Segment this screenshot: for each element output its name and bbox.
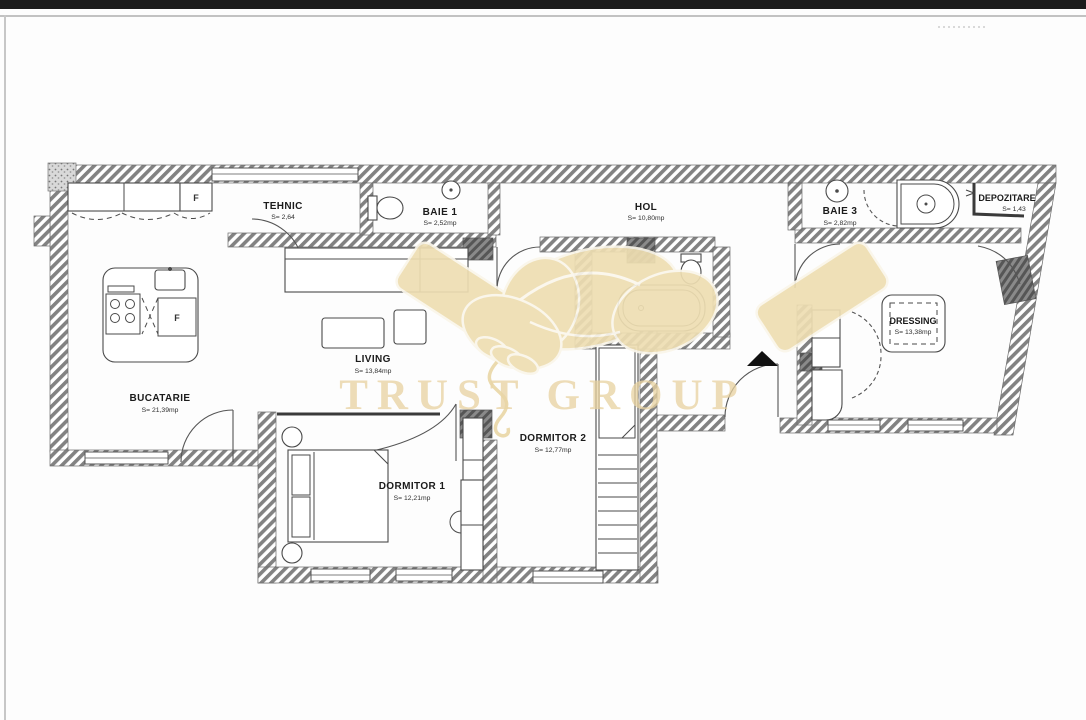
wall-right-slanted: [994, 183, 1056, 435]
room-area-baie3: S= 2,82mp: [823, 220, 856, 227]
kitchen-island: [103, 267, 198, 362]
wall-dormitor-divider: [483, 440, 497, 583]
kitchen-counter: [68, 183, 180, 211]
room-name-baie1: BAIE 1: [423, 207, 458, 218]
room-name-living: LIVING: [355, 354, 391, 365]
bed-dormitor1: [288, 450, 388, 542]
dormitor1-group: [282, 418, 483, 567]
room-area-living: S= 13,84mp: [355, 368, 392, 375]
shower: [897, 180, 959, 228]
window: [908, 420, 963, 431]
floor-plan-page: TRUST GROUP TEHNIC S= 2,64 BAIE 1 S= 2,5…: [0, 0, 1086, 720]
room-name-depozitare: DEPOZITARE: [978, 193, 1035, 203]
kitchen-group: [68, 183, 212, 362]
window: [533, 571, 603, 583]
shower-door-arc: [864, 190, 897, 226]
fridge-label: F: [193, 193, 199, 203]
armchair: [394, 310, 426, 344]
watermark-text: TRUST GROUP: [339, 372, 747, 419]
wall-stairwell-right: [640, 330, 657, 583]
window: [396, 569, 452, 581]
wall-baie3-bottom: [795, 228, 1021, 243]
dressing-folding-door-upper: [852, 312, 881, 355]
north-arrow-icon: [747, 351, 778, 366]
island-appliance-label: F: [174, 313, 180, 323]
island-sink: [155, 270, 185, 290]
wall-baie1-right: [488, 183, 500, 235]
room-name-dressing: DRESSING: [889, 316, 936, 326]
room-area-dormitor2: S= 12,77mp: [535, 447, 572, 454]
nightstand: [282, 427, 302, 447]
window: [212, 168, 358, 181]
toilet-baie1: [368, 196, 403, 220]
room-area-dressing: S= 13,38mp: [895, 329, 932, 336]
room-area-bucatarie: S= 21,39mp: [142, 407, 179, 414]
nightstand: [282, 543, 302, 563]
sink-baie3: [826, 180, 848, 202]
upper-cabinets-dashed: [72, 213, 210, 220]
coffee-table: [322, 318, 384, 348]
room-area-dormitor1: S= 12,21mp: [394, 495, 431, 502]
window: [311, 569, 370, 581]
window: [85, 452, 168, 464]
wall-dormitor1-left: [258, 412, 276, 583]
faucet-icon: [168, 267, 172, 271]
wall-baie3-left: [788, 183, 802, 230]
window: [828, 420, 880, 431]
room-name-dormitor2: DORMITOR 2: [520, 433, 587, 444]
wardrobe-dormitor2: [450, 480, 483, 570]
floor-plan-canvas: TRUST GROUP TEHNIC S= 2,64 BAIE 1 S= 2,5…: [0, 0, 1086, 720]
room-area-depozitare: S= 1,43: [1002, 206, 1026, 213]
wall-left: [50, 183, 68, 452]
room-name-tehnic: TEHNIC: [263, 201, 303, 212]
dressing-folding-door-lower: [852, 355, 881, 398]
room-area-tehnic: S= 2,64: [271, 214, 295, 221]
room-name-baie3: BAIE 3: [823, 206, 858, 217]
room-area-hol: S= 10,80mp: [628, 215, 665, 222]
wall-left-jog: [34, 216, 50, 246]
room-area-baie1: S= 2,52mp: [423, 220, 456, 227]
room-name-hol: HOL: [635, 202, 657, 213]
room-name-bucatarie: BUCATARIE: [129, 393, 190, 404]
room-name-dormitor1: DORMITOR 1: [379, 481, 446, 492]
sink-baie1: [442, 181, 460, 199]
